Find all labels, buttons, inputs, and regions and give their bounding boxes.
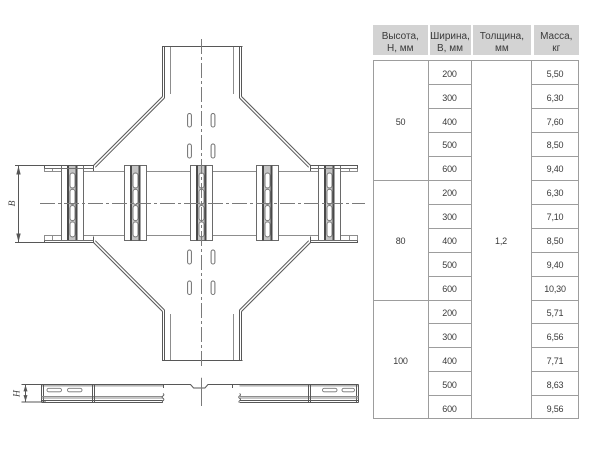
svg-text:В: В bbox=[8, 200, 18, 206]
svg-text:Н: Н bbox=[13, 389, 23, 398]
